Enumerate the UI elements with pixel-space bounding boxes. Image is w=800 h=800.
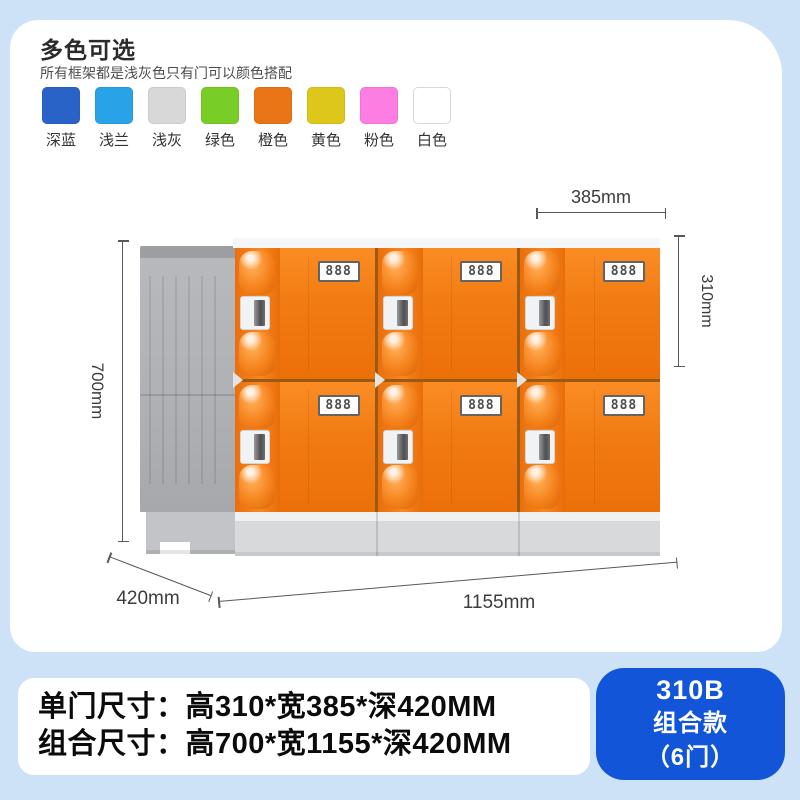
door-number-plate: 888 [460, 261, 502, 282]
door-handle [525, 430, 555, 464]
dim-line-door-height [678, 235, 679, 367]
color-swatch-label: 深蓝 [46, 129, 76, 150]
locker-door: 888 [378, 248, 518, 379]
handle-slot-icon [397, 434, 408, 460]
color-swatch-pink [360, 87, 398, 124]
color-swatch-label: 绿色 [205, 129, 235, 150]
handle-slot-icon [539, 434, 550, 460]
dim-label-door-width: 385mm [536, 187, 666, 208]
locker-door: 888 [520, 382, 660, 513]
hinge-bump [524, 332, 560, 376]
section-title: 多色可选 [40, 31, 136, 65]
door-number-plate: 888 [460, 395, 502, 416]
door-handle [383, 296, 413, 330]
dim-label-depth: 420mm [108, 588, 188, 610]
locker-cabinet: 888 888 888 [140, 238, 660, 560]
door-panel: 888 [565, 248, 660, 379]
door-number-plate: 888 [603, 395, 645, 416]
model-type: 组合款 [653, 708, 728, 740]
dim-label-door-height: 310mm [697, 256, 715, 346]
door-panel: 888 [423, 248, 518, 379]
handle-slot-icon [254, 300, 265, 326]
color-swatch-yellow [307, 87, 345, 124]
side-panel [140, 258, 235, 512]
handle-slot-icon [254, 434, 265, 460]
hinge-bump [524, 385, 560, 429]
hinge-bump [239, 251, 275, 295]
color-swatch-label: 浅兰 [99, 129, 129, 150]
hinge-bump [239, 465, 275, 509]
color-option: 白色 [413, 87, 451, 150]
hinge-bump [524, 465, 560, 509]
dim-line-door-width [536, 212, 666, 213]
hinge-bump [382, 385, 418, 429]
door-panel: 888 [423, 382, 518, 513]
cabinet-top [233, 238, 660, 248]
door-handle [525, 296, 555, 330]
spec-line-single-door: 单门尺寸：高310*宽385*深420MM [38, 689, 590, 726]
hinge-strip [520, 248, 565, 379]
color-option: 浅兰 [95, 87, 133, 150]
hinge-bump [382, 465, 418, 509]
color-option: 深蓝 [42, 87, 80, 150]
cabinet-front: 888 888 888 [235, 248, 660, 512]
door-handle [240, 430, 270, 464]
hinge-bump [382, 332, 418, 376]
hinge-bump [382, 251, 418, 295]
spec-box: 单门尺寸：高310*宽385*深420MM 组合尺寸：高700*宽1155*深4… [18, 678, 590, 775]
color-option: 绿色 [201, 87, 239, 150]
locker-door: 888 [235, 248, 375, 379]
locker-door: 888 [235, 382, 375, 513]
hinge-bump [239, 385, 275, 429]
color-swatch-lightgray [148, 87, 186, 124]
handle-slot-icon [397, 300, 408, 326]
hinge-strip [235, 382, 280, 513]
hinge-strip [378, 382, 423, 513]
door-number-plate: 888 [318, 395, 360, 416]
color-swatch-label: 橙色 [258, 129, 288, 150]
door-number-plate: 888 [318, 261, 360, 282]
product-infographic: 多色可选 所有框架都是浅灰色只有门可以颜色搭配 深蓝 浅兰 浅灰 绿色 橙色 黄… [0, 0, 800, 800]
color-option: 浅灰 [148, 87, 186, 150]
hinge-bump [239, 332, 275, 376]
locker-door: 888 [520, 248, 660, 379]
color-swatch-green [201, 87, 239, 124]
door-handle [240, 296, 270, 330]
color-options-row: 深蓝 浅兰 浅灰 绿色 橙色 黄色 粉色 白色 [42, 87, 451, 150]
color-option: 粉色 [360, 87, 398, 150]
dim-label-total-width: 1155mm [434, 592, 564, 614]
hinge-bump [524, 251, 560, 295]
color-option: 橙色 [254, 87, 292, 150]
handle-slot-icon [539, 300, 550, 326]
section-subtitle: 所有框架都是浅灰色只有门可以颜色搭配 [40, 63, 292, 83]
model-number: 310B [656, 674, 725, 706]
color-swatch-label: 白色 [417, 129, 447, 150]
color-swatch-darkblue [42, 87, 80, 124]
base-divider [376, 512, 378, 556]
door-handle [383, 430, 413, 464]
color-option: 黄色 [307, 87, 345, 150]
door-number-plate: 888 [603, 261, 645, 282]
hinge-strip [235, 248, 280, 379]
color-swatch-lightblue [95, 87, 133, 124]
door-panel: 888 [280, 382, 375, 513]
locker-door: 888 [378, 382, 518, 513]
color-swatch-label: 粉色 [364, 129, 394, 150]
color-swatch-orange [254, 87, 292, 124]
model-door-count: （6门） [646, 742, 735, 774]
spec-line-combined: 组合尺寸：高700*宽1155*深420MM [38, 726, 590, 763]
color-swatch-label: 浅灰 [152, 129, 182, 150]
model-badge: 310B 组合款 （6门） [596, 668, 785, 780]
door-panel: 888 [280, 248, 375, 379]
hinge-strip [378, 248, 423, 379]
door-panel: 888 [565, 382, 660, 513]
dim-label-total-height: 700mm [87, 346, 107, 436]
hinge-strip [520, 382, 565, 513]
dim-line-total-height [122, 240, 123, 542]
color-swatch-label: 黄色 [311, 129, 341, 150]
cabinet-base [235, 512, 660, 556]
base-side [146, 512, 235, 554]
base-divider [518, 512, 520, 556]
color-swatch-white [413, 87, 451, 124]
